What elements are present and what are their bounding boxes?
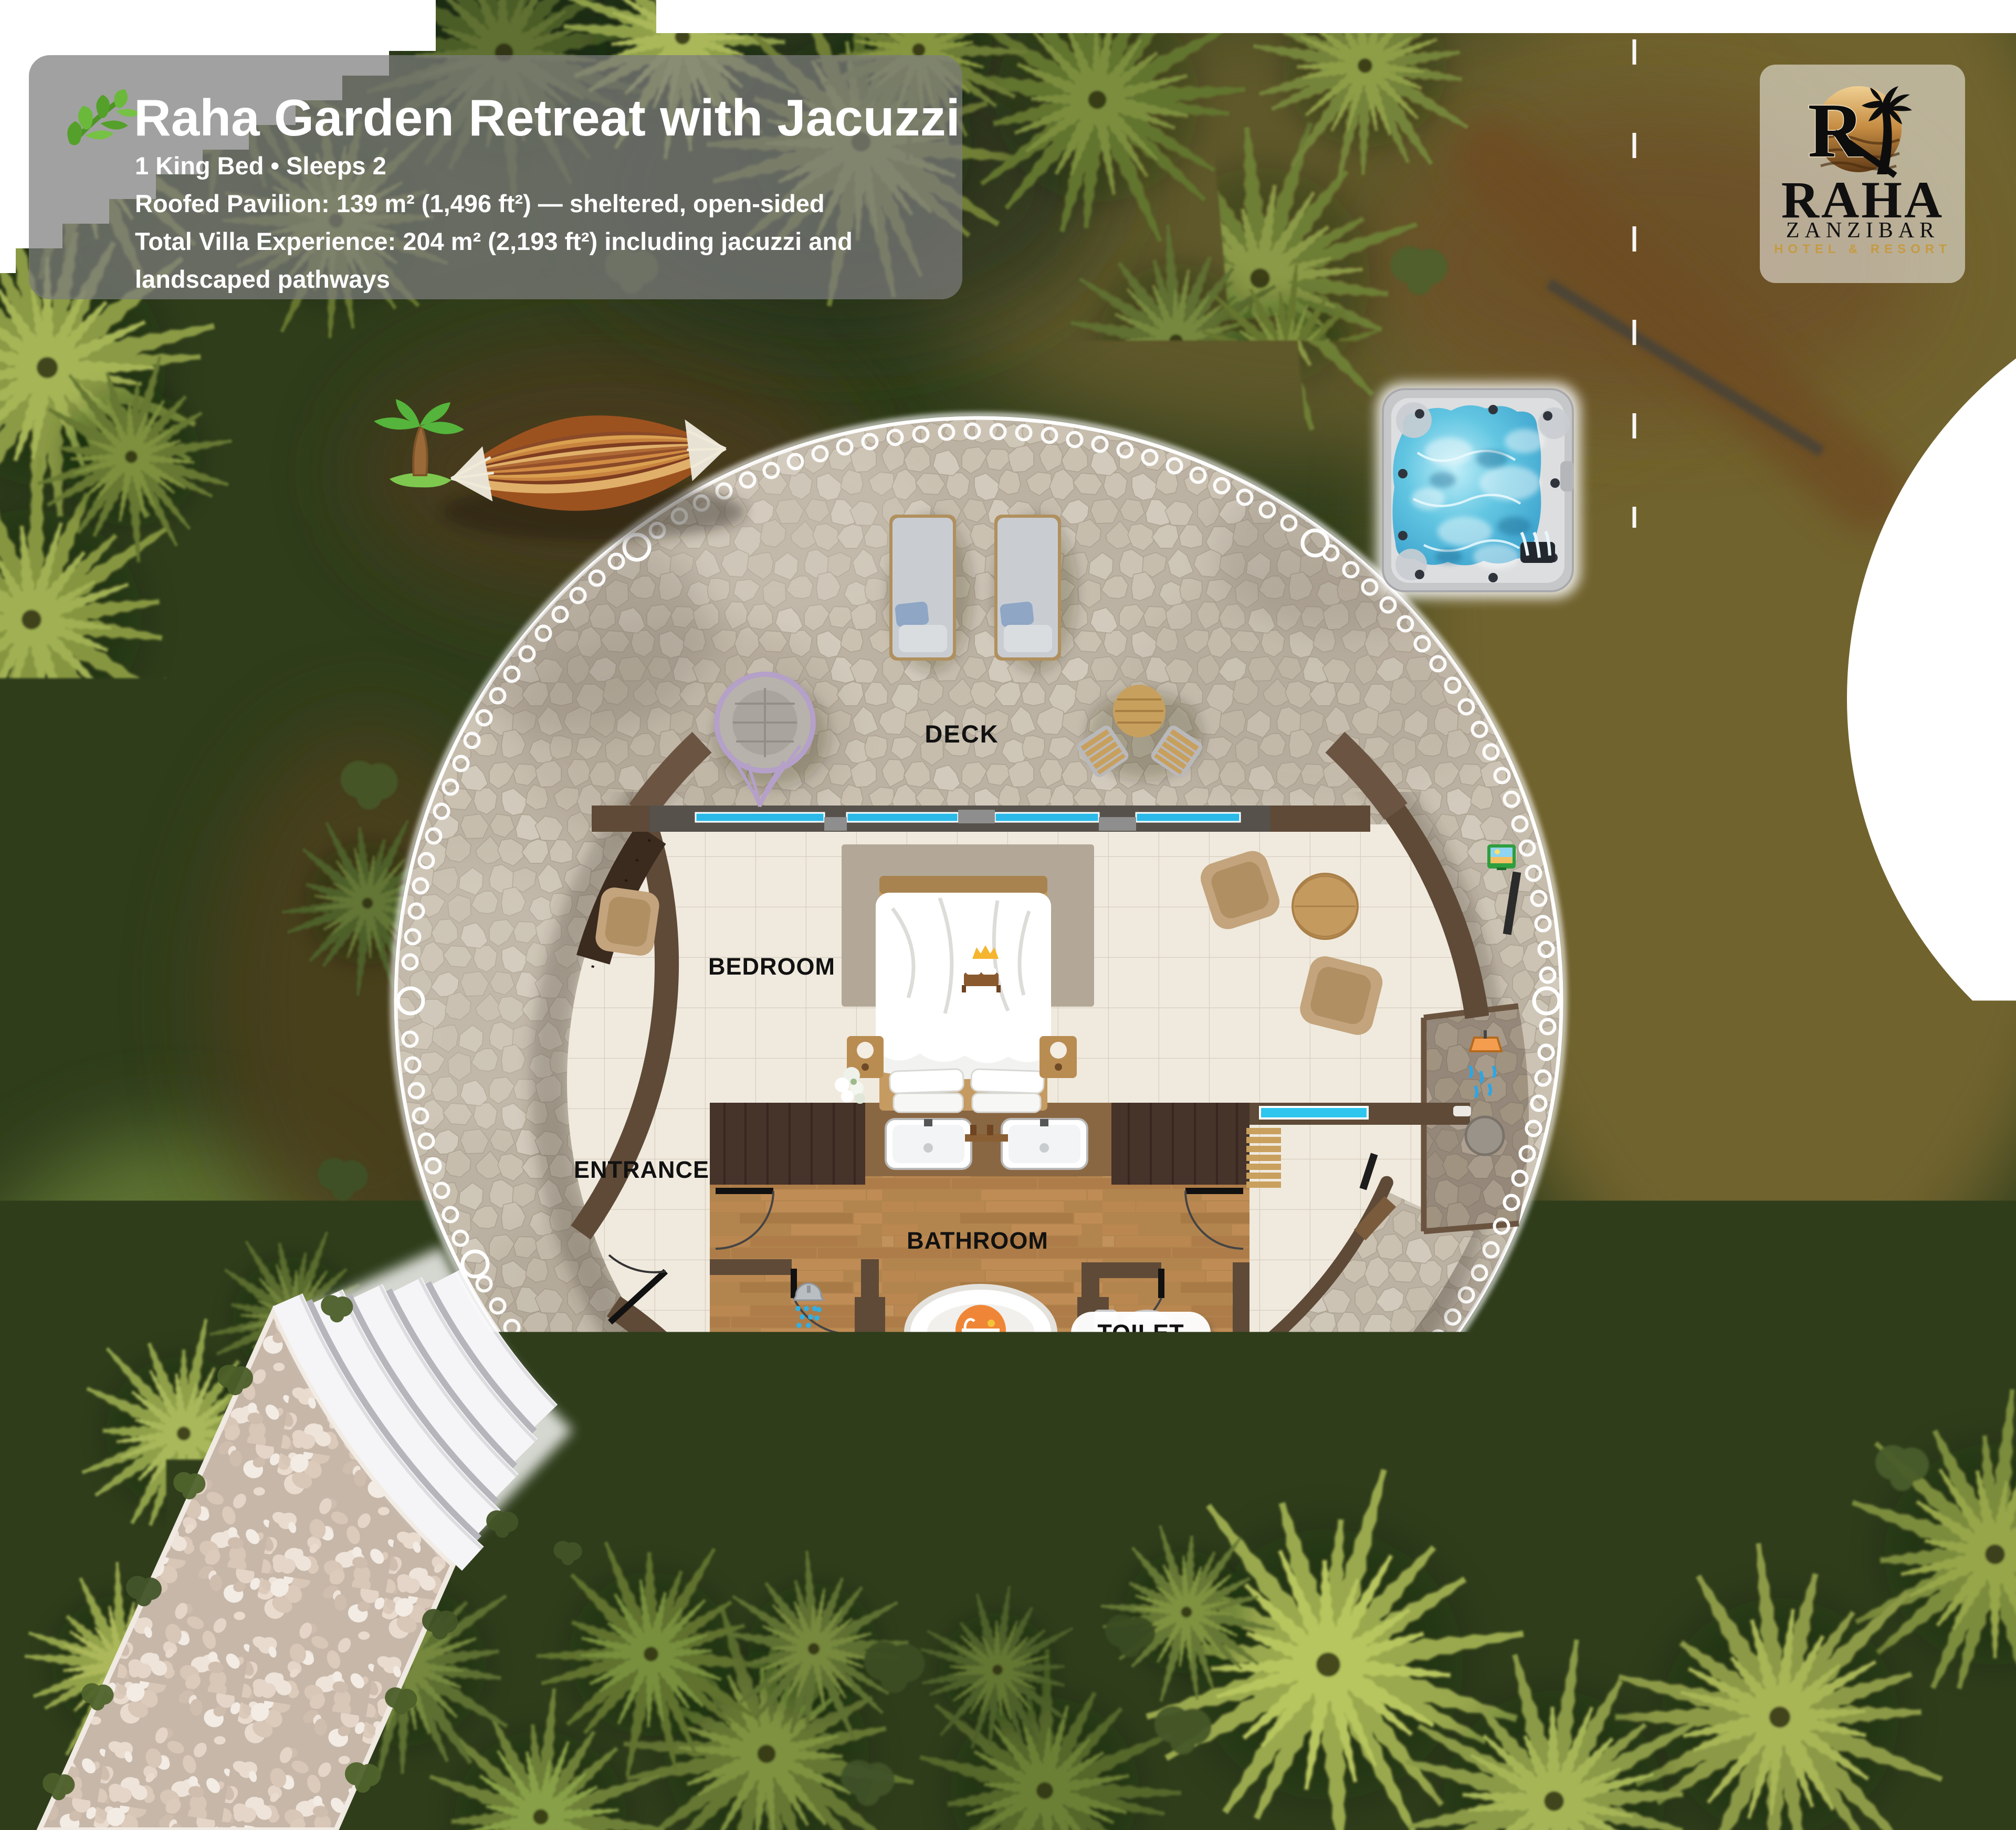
svg-text:TOILET: TOILET	[1097, 1320, 1184, 1346]
svg-text:Roofed Pavilion: 139 m² (1,496: Roofed Pavilion: 139 m² (1,496 ft²) — sh…	[135, 190, 825, 217]
svg-text:KING BED: KING BED	[1626, 1473, 1772, 1505]
svg-text:BEDROOM: BEDROOM	[708, 953, 835, 980]
svg-text:DECK: DECK	[925, 720, 999, 748]
svg-text:BATHROOM: BATHROOM	[907, 1227, 1048, 1254]
svg-text:SHOWER: SHOWER	[741, 1371, 850, 1398]
svg-text:DUAL VANITY: DUAL VANITY	[1626, 1636, 1824, 1669]
svg-text:FREESTANDING TUB: FREESTANDING TUB	[1626, 1561, 1928, 1594]
svg-text:TV: TV	[1626, 1518, 1664, 1550]
svg-text:ZANZIBAR: ZANZIBAR	[1786, 218, 1939, 243]
svg-text:Total Villa Experience: 204 m²: Total Villa Experience: 204 m² (2,193 ft…	[135, 227, 853, 255]
svg-text:OUTDOOR RAIN SHOWER: OUTDOOR RAIN SHOWER	[1626, 1675, 2001, 1708]
svg-text:PRIVATE GARDEN: PRIVATE GARDEN	[1626, 1717, 1888, 1750]
svg-text:landscaped pathways: landscaped pathways	[135, 265, 390, 293]
svg-text:PROPERTY LINE: PROPERTY LINE	[1626, 1755, 1865, 1788]
svg-text:ENTRANCE: ENTRANCE	[574, 1156, 709, 1183]
svg-text:LEGEND: LEGEND	[1654, 1423, 1794, 1458]
svg-text:HOTEL & RESORT: HOTEL & RESORT	[1774, 242, 1951, 256]
svg-text:RAIN SHOWER: RAIN SHOWER	[1626, 1599, 1841, 1632]
svg-text:1 King Bed • Sleeps 2: 1 King Bed • Sleeps 2	[135, 152, 386, 180]
svg-text:Raha Garden Retreat with Jacuz: Raha Garden Retreat with Jacuzzi	[134, 89, 960, 147]
